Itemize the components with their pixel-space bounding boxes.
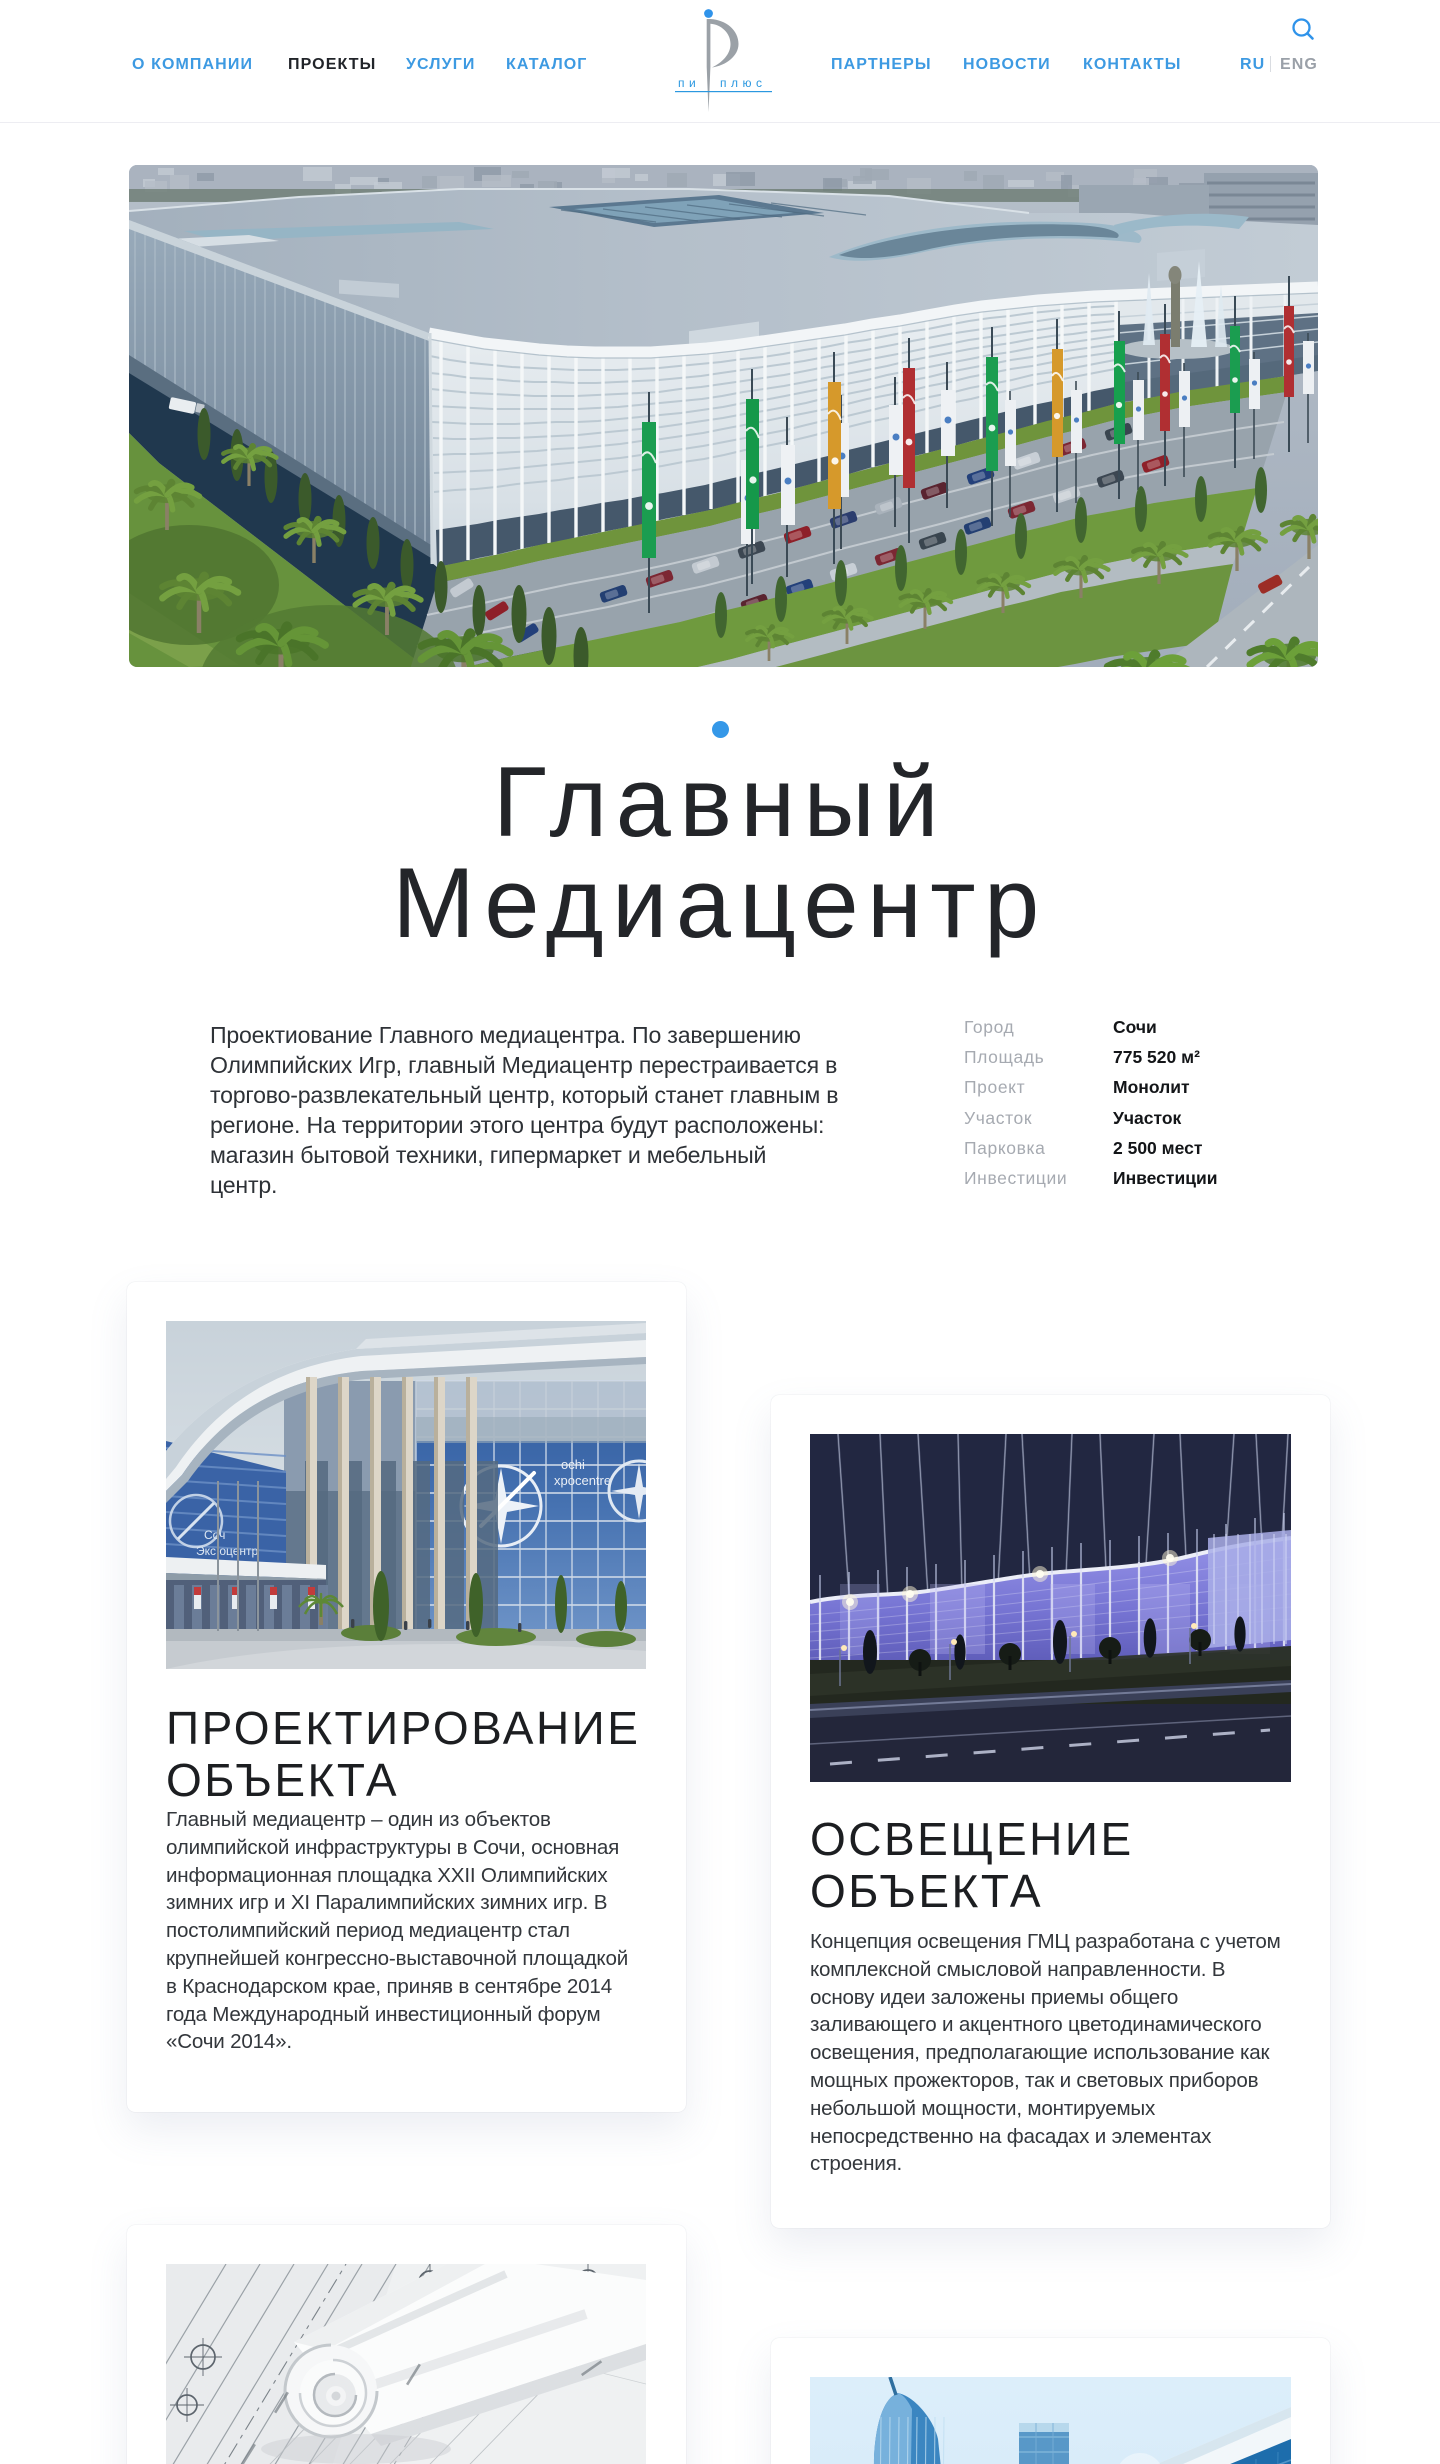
svg-text:плюс: плюс	[720, 76, 767, 90]
svg-text:xpocentre: xpocentre	[554, 1473, 611, 1488]
svg-text:Соч: Соч	[204, 1528, 225, 1542]
svg-text:ochi: ochi	[561, 1457, 585, 1472]
svg-text:пи: пи	[678, 76, 700, 90]
svg-text:Экс оцентр: Экс оцентр	[196, 1544, 259, 1558]
